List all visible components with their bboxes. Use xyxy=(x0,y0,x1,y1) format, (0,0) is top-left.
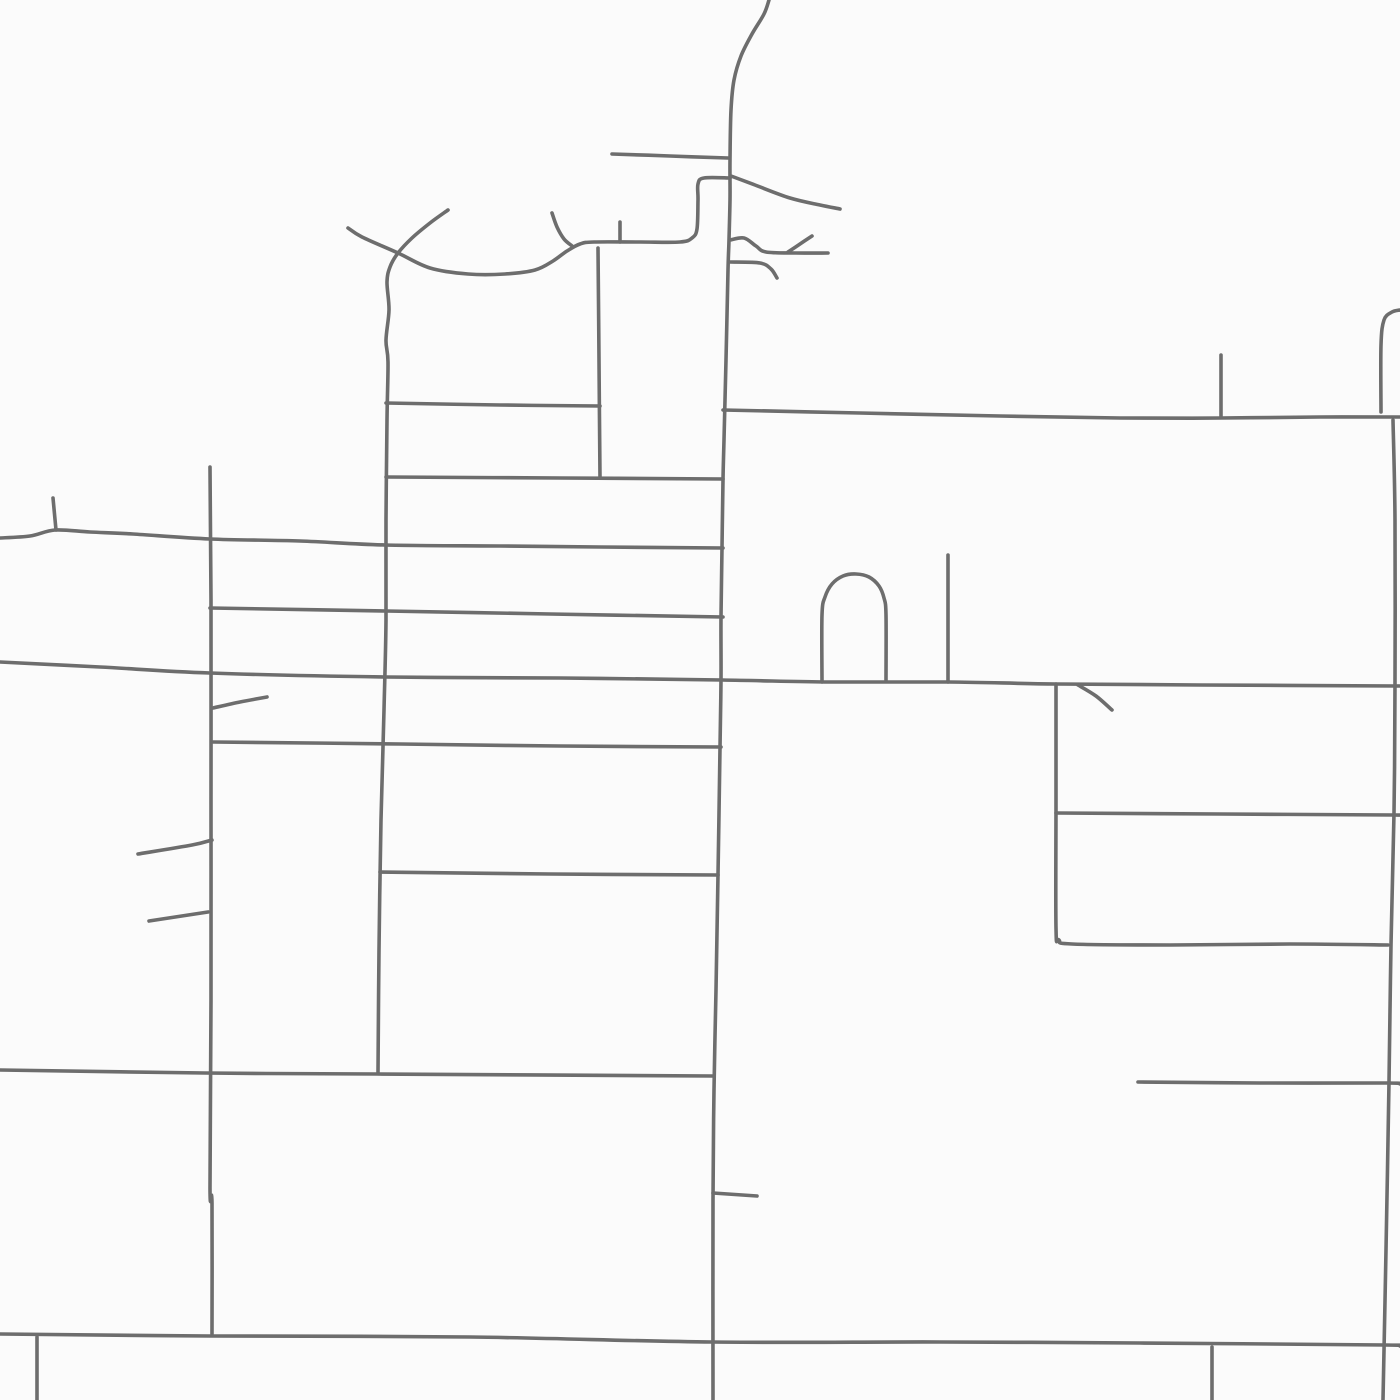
road-boulevard-south-1334 xyxy=(0,1334,1400,1346)
road-long-road-west-538 xyxy=(0,530,723,548)
road-stub-road-757 xyxy=(713,1193,757,1196)
road-small-branch-road xyxy=(552,213,572,246)
road-squiggle-road-south xyxy=(730,262,777,278)
road-cross-street-477 xyxy=(386,477,723,479)
road-curving-road-east xyxy=(731,176,840,209)
road-east-road-813 xyxy=(1056,813,1400,815)
road-stub-road-53 xyxy=(53,498,56,530)
road-cross-street-742 xyxy=(213,742,721,747)
map-viewport xyxy=(0,0,1400,1400)
road-map-canvas xyxy=(0,0,1400,1400)
road-cross-street-403 xyxy=(386,403,600,406)
road-cross-street-1073 xyxy=(0,1070,713,1076)
road-crescent-road xyxy=(348,178,730,275)
road-branch-diagonal-708 xyxy=(213,697,267,708)
road-east-road-1082 xyxy=(1138,1082,1400,1084)
road-vertical-road-210 xyxy=(210,467,212,1334)
road-cross-street-872 xyxy=(380,872,718,875)
road-east-west-road-413 xyxy=(723,410,1400,418)
road-branch-diagonal-685 xyxy=(1078,685,1112,710)
road-branch-diagonal-921 xyxy=(149,912,208,921)
road-squiggle-road-north xyxy=(730,238,828,253)
road-west-wavy-vertical-road xyxy=(378,210,448,1073)
road-squiggle-branch xyxy=(788,236,812,252)
road-main-road-north-south xyxy=(713,0,769,1400)
road-right-road-lower xyxy=(1383,420,1395,1400)
road-right-road-upper xyxy=(1381,310,1400,412)
road-vertical-road-600 xyxy=(598,248,600,478)
road-dead-end-road-west xyxy=(612,154,728,158)
road-branch-diagonal-854 xyxy=(138,840,212,854)
road-cross-street-608 xyxy=(210,608,723,617)
road-arch-road xyxy=(822,574,886,682)
